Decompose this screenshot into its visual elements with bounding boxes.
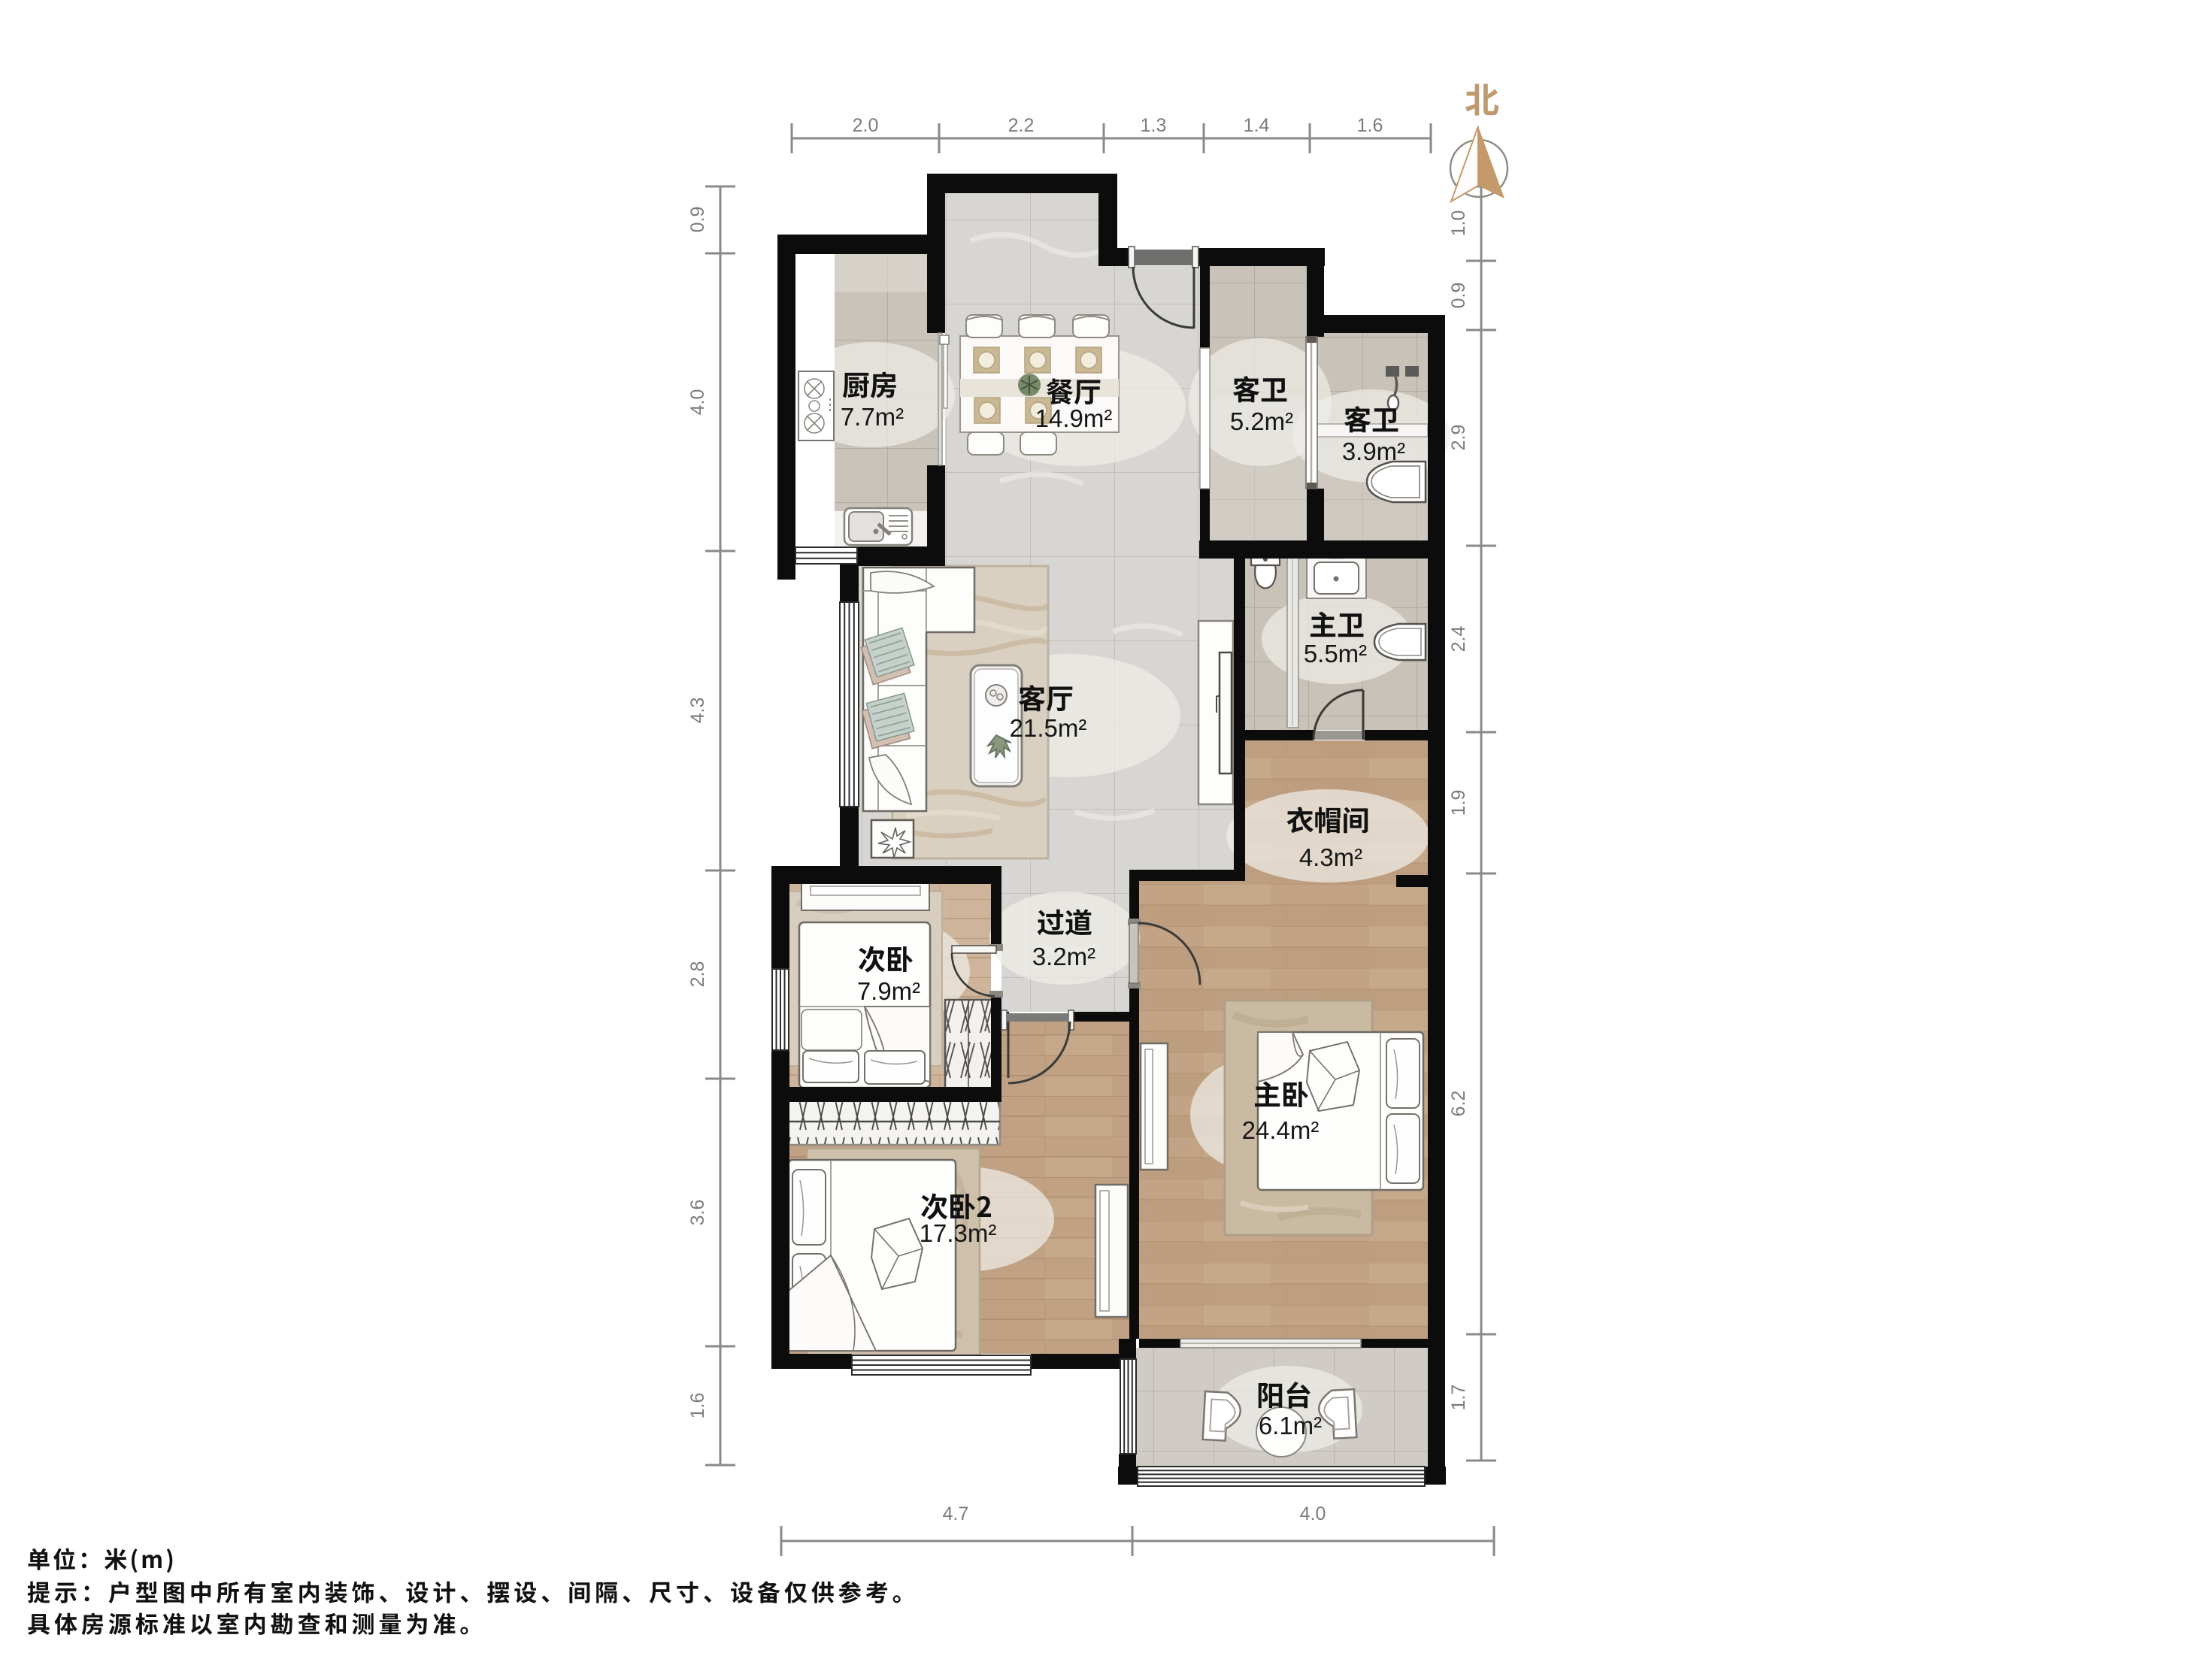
svg-text:4.3m²: 4.3m² [1299, 843, 1362, 871]
svg-text:0.9: 0.9 [1448, 283, 1469, 309]
svg-text:6.1m²: 6.1m² [1259, 1412, 1322, 1440]
svg-text:4.0: 4.0 [1300, 1503, 1326, 1524]
svg-text:5.5m²: 5.5m² [1304, 640, 1367, 668]
svg-text:24.4m²: 24.4m² [1242, 1116, 1320, 1144]
svg-text:4.0: 4.0 [687, 389, 708, 416]
svg-text:1.6: 1.6 [687, 1393, 708, 1419]
svg-text:1.4: 1.4 [1244, 115, 1270, 136]
svg-text:2.0: 2.0 [853, 115, 879, 136]
svg-text:6.2: 6.2 [1448, 1091, 1469, 1117]
svg-text:4.7: 4.7 [943, 1503, 969, 1524]
svg-text:14.9m²: 14.9m² [1035, 404, 1113, 432]
svg-text:2.8: 2.8 [687, 961, 708, 988]
svg-text:1.3: 1.3 [1141, 115, 1167, 136]
svg-text:7.9m²: 7.9m² [857, 977, 920, 1005]
svg-text:1.7: 1.7 [1448, 1385, 1469, 1411]
svg-text:4.3: 4.3 [687, 698, 708, 724]
svg-text:3.2m²: 3.2m² [1032, 943, 1095, 970]
svg-text:2.4: 2.4 [1448, 626, 1469, 652]
svg-text:3.6: 3.6 [687, 1200, 708, 1226]
svg-text:5.2m²: 5.2m² [1230, 407, 1293, 435]
svg-text:0.9: 0.9 [687, 207, 708, 233]
svg-text:7.7m²: 7.7m² [841, 403, 904, 431]
svg-text:3.9m²: 3.9m² [1342, 437, 1405, 465]
svg-text:2.9: 2.9 [1448, 425, 1469, 451]
svg-text:2.2: 2.2 [1008, 115, 1035, 136]
svg-text:17.3m²: 17.3m² [920, 1219, 997, 1247]
svg-text:21.5m²: 21.5m² [1010, 714, 1087, 742]
svg-text:1.6: 1.6 [1357, 115, 1383, 136]
svg-text:1.0: 1.0 [1448, 210, 1469, 237]
svg-text:1.9: 1.9 [1448, 790, 1469, 816]
